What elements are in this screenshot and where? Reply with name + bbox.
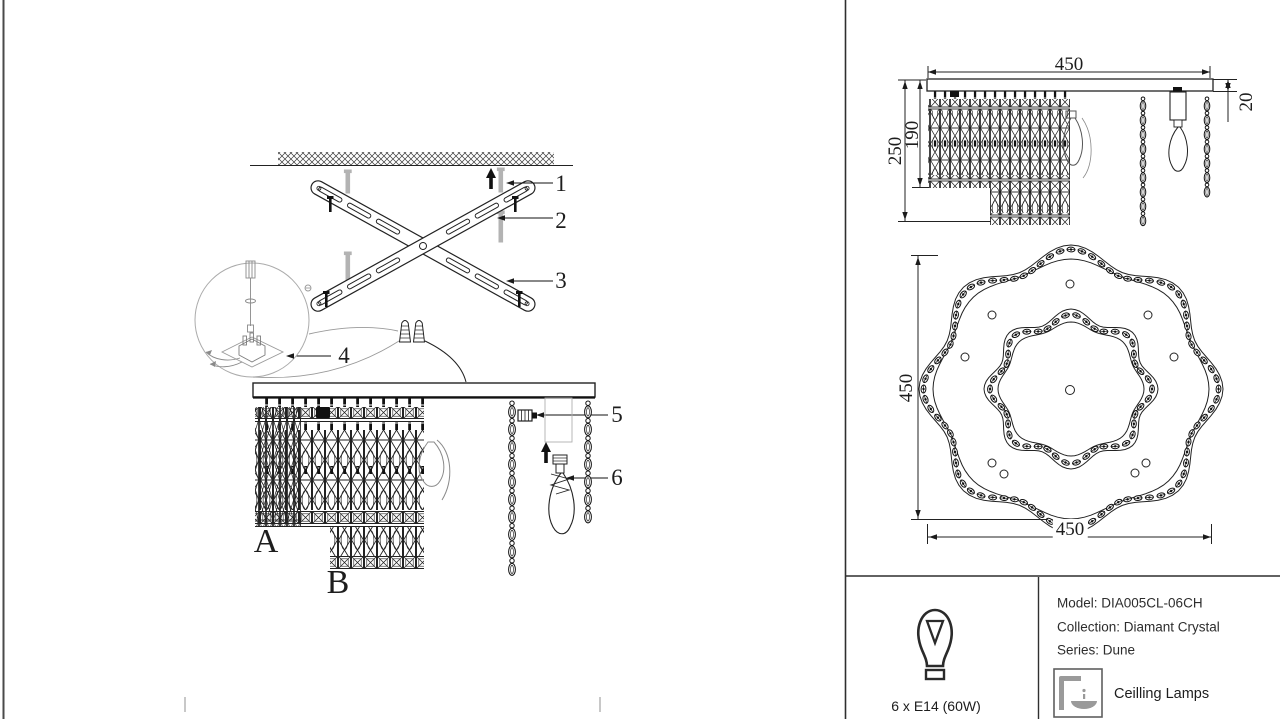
top-view-width-dim: 450 (1053, 519, 1088, 541)
side-view (898, 66, 1237, 225)
panel-a-label: A (254, 523, 279, 561)
socket-adapter (518, 410, 537, 421)
top-view-height-dim: 450 (896, 374, 918, 403)
callout-1-label: 1 (555, 171, 567, 197)
callout-3-label: 3 (555, 268, 567, 294)
diagram-artwork (0, 0, 1280, 719)
callout-4-label: 4 (338, 343, 350, 369)
bulb-count-label: 6 x E14 (60W) (891, 698, 980, 714)
category-label: Ceilling Lamps (1114, 686, 1209, 702)
side-width-dim: 450 (1055, 54, 1084, 76)
model-line: Model: DIA005CL-06CH (1057, 596, 1203, 611)
callout-6-label: 6 (611, 465, 623, 491)
panel-b-label: B (327, 564, 350, 602)
callout-5-label: 5 (611, 402, 623, 428)
series-line: Series: Dune (1057, 643, 1135, 658)
cross-mounting-bracket (309, 178, 538, 313)
callout-2-label: 2 (555, 208, 567, 234)
socket-guide-outline (545, 398, 572, 442)
side-body-height-dim: 190 (902, 121, 924, 150)
ceiling-lamp-icon (1054, 669, 1102, 717)
lamp-base-plate (253, 383, 595, 398)
side-plate-thickness-dim: 20 (1236, 93, 1258, 112)
crystal-mesh-a (255, 398, 424, 527)
candle-bulb (549, 455, 574, 534)
page-borders (4, 0, 1280, 719)
instruction-sheet: 1 2 3 4 5 6 A B 450 250 190 20 450 450 6… (0, 0, 1280, 719)
collection-line: Collection: Diamant Crystal (1057, 620, 1220, 635)
ceiling-hatch (250, 152, 573, 166)
bulb-icon (918, 610, 951, 679)
wiring-detail-circle (195, 261, 311, 377)
mesh-clip (316, 407, 330, 418)
